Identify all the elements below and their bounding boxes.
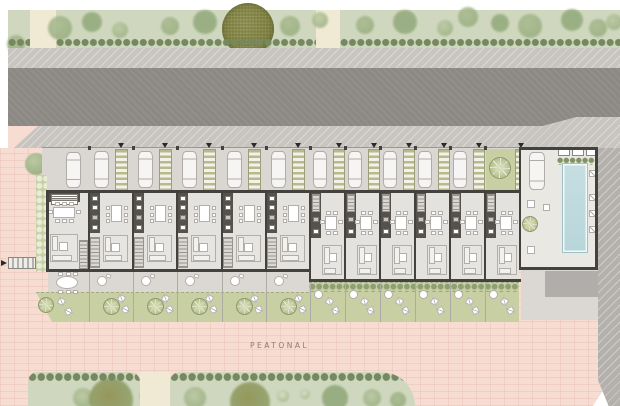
sofa: [149, 255, 166, 261]
sofa: [193, 237, 199, 252]
car: [66, 152, 81, 188]
chair: [66, 290, 71, 294]
stairs: [487, 194, 495, 212]
patio-table: [527, 200, 535, 208]
chair: [69, 202, 74, 206]
appliance: [418, 217, 424, 222]
chair: [194, 206, 199, 210]
appliance: [348, 217, 354, 222]
chair: [320, 220, 325, 224]
party-wall: [221, 190, 223, 271]
appliance: [313, 217, 319, 222]
entry-arrow-icon: [371, 143, 377, 148]
stairs: [223, 237, 233, 268]
pergola-walkway: [333, 149, 345, 192]
dining-table: [53, 207, 75, 218]
sofa: [52, 255, 72, 261]
chair: [66, 272, 71, 276]
bush: [491, 14, 509, 32]
appliance: [225, 205, 231, 210]
sofa: [282, 255, 299, 261]
sofa: [282, 237, 288, 252]
stairs: [90, 237, 100, 268]
sofa: [52, 236, 58, 251]
patio-table: [527, 246, 535, 254]
side-street-band: [598, 148, 620, 406]
bush: [518, 14, 542, 38]
chair: [62, 219, 67, 223]
chair: [150, 213, 155, 217]
appliance: [92, 215, 98, 220]
chair: [431, 231, 436, 235]
appliance: [488, 229, 494, 234]
bush: [356, 16, 374, 34]
chair: [438, 211, 443, 215]
chair: [62, 202, 67, 206]
back-wall-left: [46, 269, 311, 272]
dining-table: [111, 205, 122, 222]
chair: [326, 211, 331, 215]
garden-divider: [345, 282, 346, 322]
chair: [106, 219, 111, 223]
coffee-table: [199, 243, 208, 252]
chair: [124, 219, 129, 223]
entry-arrow-icon: [406, 143, 412, 148]
stairs: [417, 194, 425, 212]
garden-divider: [222, 271, 223, 322]
chair: [239, 213, 244, 217]
party-wall: [484, 190, 486, 281]
appliance: [383, 229, 389, 234]
chair: [283, 206, 288, 210]
island-bush: [300, 389, 310, 399]
sofa: [464, 247, 470, 264]
stairs: [452, 194, 460, 212]
dining-table: [500, 216, 512, 230]
garden-tree: [489, 157, 511, 179]
appliance: [418, 229, 424, 234]
garden-divider: [310, 282, 311, 322]
garden-divider: [415, 282, 416, 322]
garden-divider: [450, 282, 451, 322]
chair: [361, 231, 366, 235]
chair: [390, 220, 395, 224]
appliance: [225, 225, 231, 230]
wall-tick: [265, 146, 268, 150]
stairs: [347, 194, 355, 212]
party-wall: [88, 190, 90, 271]
chair: [168, 213, 173, 217]
chair: [501, 211, 506, 215]
coffee-table: [59, 242, 68, 251]
stairs: [312, 194, 320, 212]
bush: [437, 20, 453, 36]
pergola-walkway: [292, 149, 305, 192]
front-wall-left: [46, 190, 519, 193]
terrace-table: [141, 276, 151, 286]
stairs: [382, 194, 390, 212]
sofa: [193, 255, 210, 261]
entry-arrow-icon: [336, 143, 342, 148]
car: [94, 151, 109, 188]
sofa: [105, 237, 111, 252]
chair: [368, 231, 373, 235]
dining-table: [360, 216, 372, 230]
party-wall: [309, 190, 311, 281]
sofa: [464, 268, 476, 274]
car: [383, 151, 397, 188]
chair: [257, 206, 262, 210]
island-bush: [277, 390, 289, 402]
wall-tick: [221, 146, 224, 150]
chair: [168, 219, 173, 223]
sofa: [429, 268, 441, 274]
party-wall: [414, 190, 416, 281]
chair: [124, 213, 129, 217]
terrace-table: [274, 276, 284, 286]
dining-table: [155, 205, 166, 222]
chair: [403, 211, 408, 215]
chair: [473, 211, 478, 215]
chair: [48, 210, 53, 214]
dining-table: [325, 216, 337, 230]
planter: [558, 149, 570, 156]
chair: [106, 213, 111, 217]
coffee-table: [288, 243, 297, 252]
wall-tick: [176, 146, 179, 150]
dining-table: [430, 216, 442, 230]
chair: [460, 220, 465, 224]
crosswalk: [8, 257, 36, 269]
car: [271, 151, 286, 188]
outer-wall-left: [46, 190, 49, 271]
entry-arrow-icon: [162, 143, 168, 148]
chair: [373, 220, 378, 224]
party-wall: [344, 190, 346, 281]
garden-table: [454, 290, 463, 299]
car: [138, 151, 153, 188]
wall-tick: [449, 146, 452, 150]
coffee-table: [111, 243, 120, 252]
stairs: [134, 237, 144, 268]
curb-line: [42, 147, 598, 148]
sidewalk-top: [8, 48, 620, 68]
sofa: [394, 268, 406, 274]
chair: [466, 231, 471, 235]
chair: [283, 213, 288, 217]
bush: [312, 12, 328, 28]
chair: [194, 219, 199, 223]
bush: [48, 16, 72, 40]
island-hedge: [170, 372, 415, 382]
appliance: [180, 225, 186, 230]
appliance: [180, 205, 186, 210]
sofa: [499, 247, 505, 264]
entry-arrow-icon: [1, 260, 7, 266]
island-path: [140, 372, 170, 406]
chair: [55, 202, 60, 206]
garden-table: [314, 290, 323, 299]
chair: [73, 272, 78, 276]
wall-tick: [132, 146, 135, 150]
coffee-table: [433, 253, 442, 262]
patio-table: [543, 204, 550, 211]
sofa: [359, 268, 371, 274]
bush: [458, 7, 478, 27]
bush: [606, 14, 620, 30]
chair: [466, 211, 471, 215]
appliance: [136, 205, 142, 210]
entry-arrow-icon: [476, 143, 482, 148]
island-hedge: [28, 372, 140, 382]
appliance: [225, 215, 231, 220]
appliance: [269, 225, 275, 230]
chair: [257, 219, 262, 223]
garden-table: [349, 290, 358, 299]
car: [529, 152, 545, 190]
bush: [193, 10, 217, 34]
chair: [508, 211, 513, 215]
dining-table: [395, 216, 407, 230]
chair: [106, 206, 111, 210]
garden-divider: [177, 271, 178, 322]
coffee-table: [244, 243, 253, 252]
island-bush: [363, 389, 381, 406]
wall-tick: [414, 146, 417, 150]
sofa: [394, 247, 400, 264]
terrace-table: [230, 276, 240, 286]
coffee-table: [468, 253, 477, 262]
chair: [194, 213, 199, 217]
car: [418, 151, 432, 188]
car: [182, 151, 197, 188]
bush: [161, 17, 179, 35]
appliance: [92, 205, 98, 210]
sofa: [359, 247, 365, 264]
party-wall: [176, 190, 178, 271]
pergola-walkway: [248, 149, 261, 192]
appliance: [136, 196, 142, 201]
garden-divider: [89, 271, 90, 322]
appliance: [383, 217, 389, 222]
entry-arrow-icon: [118, 143, 124, 148]
pergola-walkway: [473, 149, 485, 192]
chair: [403, 231, 408, 235]
pool-unit-wall-right: [595, 147, 598, 269]
appliance: [92, 225, 98, 230]
chair: [239, 206, 244, 210]
sofa: [499, 268, 511, 274]
appliance: [225, 196, 231, 201]
garden-table: [489, 290, 498, 299]
terrace-table: [97, 276, 107, 286]
bush: [561, 9, 583, 31]
entry-arrow-icon: [441, 143, 447, 148]
chair: [301, 219, 306, 223]
chair: [76, 210, 81, 214]
chair: [508, 231, 513, 235]
wall-tick: [88, 146, 91, 150]
pergola-walkway: [115, 149, 128, 192]
appliance: [269, 205, 275, 210]
chair: [124, 206, 129, 210]
pool-unit-wall-bottom: [519, 267, 598, 270]
chair: [495, 220, 500, 224]
chair: [408, 220, 413, 224]
garden-divider: [266, 271, 267, 322]
car: [227, 151, 242, 188]
pergola-walkway: [368, 149, 380, 192]
entry-arrow-icon: [251, 143, 257, 148]
pergola-walkway: [203, 149, 216, 192]
wall-tick: [309, 146, 312, 150]
appliance: [180, 215, 186, 220]
chair: [168, 206, 173, 210]
chair: [69, 219, 74, 223]
terrace-table-oval: [56, 276, 78, 289]
pedestrian-street-label: PEATONAL: [250, 341, 360, 350]
car: [313, 151, 327, 188]
back-wall-right: [309, 279, 521, 282]
stairs: [267, 237, 277, 268]
appliance: [180, 196, 186, 201]
car: [348, 151, 362, 188]
sofa: [238, 255, 255, 261]
entry-arrow-icon: [295, 143, 301, 148]
sofa: [324, 247, 330, 264]
chair: [58, 290, 63, 294]
utility-pad: [545, 271, 598, 297]
chair: [58, 272, 63, 276]
garden-divider: [485, 282, 486, 322]
pool: [562, 163, 588, 253]
sofa: [149, 237, 155, 252]
appliance: [136, 225, 142, 230]
stairs: [178, 237, 188, 268]
chair: [431, 211, 436, 215]
appliance: [136, 215, 142, 220]
chair: [333, 211, 338, 215]
party-wall: [379, 190, 381, 281]
chair: [301, 206, 306, 210]
island-bush: [184, 387, 206, 406]
chair: [150, 206, 155, 210]
stairs: [79, 240, 88, 269]
sofa: [429, 247, 435, 264]
coffee-table: [503, 253, 512, 262]
garden-island: [170, 372, 415, 406]
appliance: [92, 196, 98, 201]
chair: [396, 211, 401, 215]
bush: [112, 22, 128, 38]
chair: [473, 231, 478, 235]
appliance: [453, 217, 459, 222]
chair: [212, 219, 217, 223]
party-wall: [449, 190, 451, 281]
garden-island: [28, 372, 140, 406]
dining-table: [199, 205, 210, 222]
bush: [280, 16, 300, 36]
appliance: [269, 196, 275, 201]
coffee-table: [328, 253, 337, 262]
chair: [73, 290, 78, 294]
appliance: [269, 215, 275, 220]
island-bush: [230, 382, 270, 406]
garden-divider: [133, 271, 134, 322]
dining-table: [288, 205, 299, 222]
coffee-table: [155, 243, 164, 252]
chair: [55, 219, 60, 223]
appliance: [488, 217, 494, 222]
chair: [338, 220, 343, 224]
chair: [513, 220, 518, 224]
sofa: [105, 255, 122, 261]
wall-tick: [379, 146, 382, 150]
chair: [478, 220, 483, 224]
coffee-table: [363, 253, 372, 262]
site-plan: PEATONAL: [0, 0, 620, 406]
chair: [443, 220, 448, 224]
island-bush: [322, 385, 348, 406]
chair: [301, 213, 306, 217]
planter: [572, 149, 584, 156]
bush: [589, 19, 607, 37]
sofa: [324, 268, 336, 274]
chair: [257, 213, 262, 217]
chair: [283, 219, 288, 223]
chair: [239, 219, 244, 223]
car: [453, 151, 467, 188]
dining-table: [244, 205, 255, 222]
chair: [368, 211, 373, 215]
pergola-walkway: [403, 149, 415, 192]
chair: [326, 231, 331, 235]
pool-unit-wall-left: [519, 147, 521, 267]
appliance: [313, 229, 319, 234]
chair: [361, 211, 366, 215]
wall-tick: [484, 146, 487, 150]
chair: [425, 220, 430, 224]
chair: [355, 220, 360, 224]
coffee-table: [398, 253, 407, 262]
party-wall: [265, 190, 267, 271]
chair: [438, 231, 443, 235]
party-wall: [132, 190, 134, 271]
appliance: [453, 229, 459, 234]
entry-arrow-icon: [206, 143, 212, 148]
chair: [501, 231, 506, 235]
pool-unit-wall-top: [519, 147, 598, 150]
terrace-table: [185, 276, 195, 286]
garden-tree: [38, 297, 54, 313]
appliance: [348, 229, 354, 234]
garden-divider: [380, 282, 381, 322]
pergola-walkway: [159, 149, 172, 192]
garden-table: [384, 290, 393, 299]
island-bush: [89, 378, 133, 406]
terrace-left: [48, 271, 309, 292]
chair: [212, 213, 217, 217]
chair: [150, 219, 155, 223]
wall-tick: [344, 146, 347, 150]
chair: [212, 206, 217, 210]
garden-table: [419, 290, 428, 299]
garden-tree: [522, 216, 538, 232]
sofa: [238, 237, 244, 252]
bush: [393, 10, 417, 34]
bush: [82, 12, 102, 32]
island-bush: [390, 392, 406, 406]
